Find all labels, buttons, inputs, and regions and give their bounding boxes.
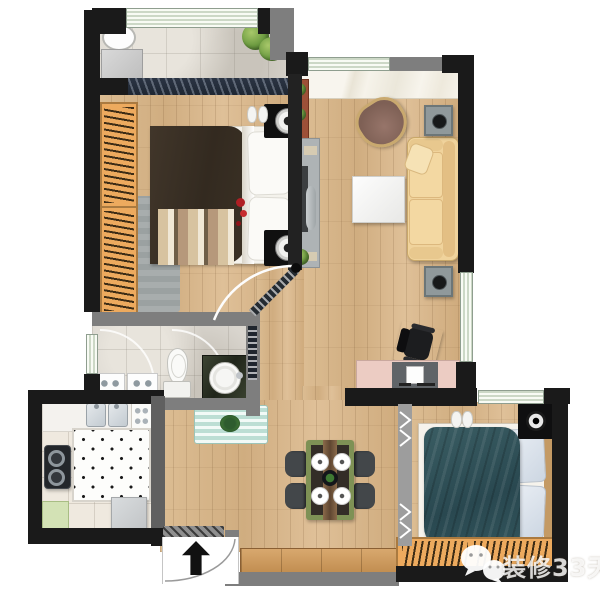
dining-chair-2 bbox=[285, 483, 306, 509]
wardrobe-hangers-top bbox=[104, 107, 134, 203]
kitchen-prep-mat bbox=[72, 428, 151, 502]
wall-living-bottomright bbox=[456, 362, 476, 390]
second-slipper-right bbox=[462, 411, 473, 428]
desk-monitor bbox=[406, 366, 424, 384]
tv-cabinet-item-top bbox=[304, 146, 317, 155]
place-setting-1 bbox=[311, 453, 329, 471]
bedroom-door-hinge bbox=[291, 263, 301, 273]
wall-kitchen-left bbox=[28, 390, 42, 544]
green-base-cabinet bbox=[42, 501, 69, 530]
wardrobe-divider bbox=[100, 206, 138, 208]
desk-slot-1 bbox=[399, 383, 411, 386]
center-bowl bbox=[322, 470, 338, 486]
folding-door-marks bbox=[397, 406, 413, 544]
second-bedroom-window bbox=[478, 390, 544, 404]
wardrobe-hangers-bottom bbox=[104, 211, 134, 311]
master-pillow-1 bbox=[247, 130, 291, 195]
wall-living-topleft bbox=[286, 52, 308, 76]
dining-chair-1 bbox=[285, 451, 306, 477]
living-window-top bbox=[308, 57, 390, 71]
sink-faucet-left bbox=[94, 404, 99, 409]
speaker-bottom-cone bbox=[432, 275, 447, 290]
wall-kitchen-top bbox=[28, 390, 164, 404]
speaker-top-cone bbox=[432, 114, 447, 129]
sofa-arm-bottom bbox=[409, 247, 443, 259]
counter-hob-panel bbox=[131, 402, 152, 430]
sofa-cushion-2 bbox=[409, 199, 443, 245]
wall-balcony-topright bbox=[258, 8, 270, 34]
toilet-seat bbox=[171, 354, 186, 378]
wall-living-right bbox=[458, 58, 474, 273]
vanity-faucet bbox=[236, 372, 243, 379]
kitchen-appliance-cart bbox=[111, 497, 147, 529]
place-setting-3 bbox=[311, 487, 329, 505]
watermark-text: 装修33天 bbox=[502, 548, 600, 583]
wall-living-top-gray bbox=[390, 57, 444, 71]
slipper-right bbox=[258, 106, 268, 123]
dining-chair-4 bbox=[354, 483, 375, 509]
sofa-back bbox=[443, 141, 455, 257]
coffee-table bbox=[352, 176, 405, 223]
second-slipper-left bbox=[451, 411, 462, 428]
wall-bottom-dining bbox=[239, 572, 399, 586]
desk-slot-2 bbox=[417, 383, 435, 386]
bath-mat-crab bbox=[220, 415, 240, 432]
wall-left bbox=[84, 10, 100, 312]
wall-balcony-bedroom bbox=[92, 78, 128, 95]
bathroom-pocket-door bbox=[248, 326, 257, 380]
living-window-right bbox=[460, 272, 473, 362]
sink-faucet-right bbox=[114, 404, 119, 409]
stove-burner-2 bbox=[48, 469, 65, 486]
second-nightstand-lamp bbox=[526, 411, 546, 431]
bay-window-sill bbox=[302, 70, 458, 99]
entry-threshold bbox=[163, 526, 224, 537]
toilet-tank bbox=[163, 381, 191, 398]
balcony-door-threshold bbox=[126, 78, 292, 95]
balcony-window bbox=[126, 8, 258, 28]
striped-foot-runner bbox=[158, 209, 234, 265]
wall-kitchen-right bbox=[151, 396, 165, 532]
slipper-left bbox=[247, 106, 257, 123]
stove-burner-1 bbox=[48, 450, 65, 467]
place-setting-2 bbox=[333, 453, 351, 471]
red-flowers bbox=[236, 198, 245, 207]
teal-blanket bbox=[424, 427, 520, 549]
bathroom-window bbox=[86, 334, 98, 374]
wall-living-bedroom bbox=[288, 74, 302, 270]
tv-soundbar bbox=[306, 186, 316, 230]
wall-kitchen-bottom bbox=[28, 528, 164, 544]
wall-bathroom-bottom bbox=[160, 398, 260, 410]
place-setting-4 bbox=[333, 487, 351, 505]
shoe-cabinet bbox=[240, 548, 398, 575]
floor-plan: 装修33天 bbox=[0, 0, 600, 592]
dining-chair-3 bbox=[354, 451, 375, 477]
